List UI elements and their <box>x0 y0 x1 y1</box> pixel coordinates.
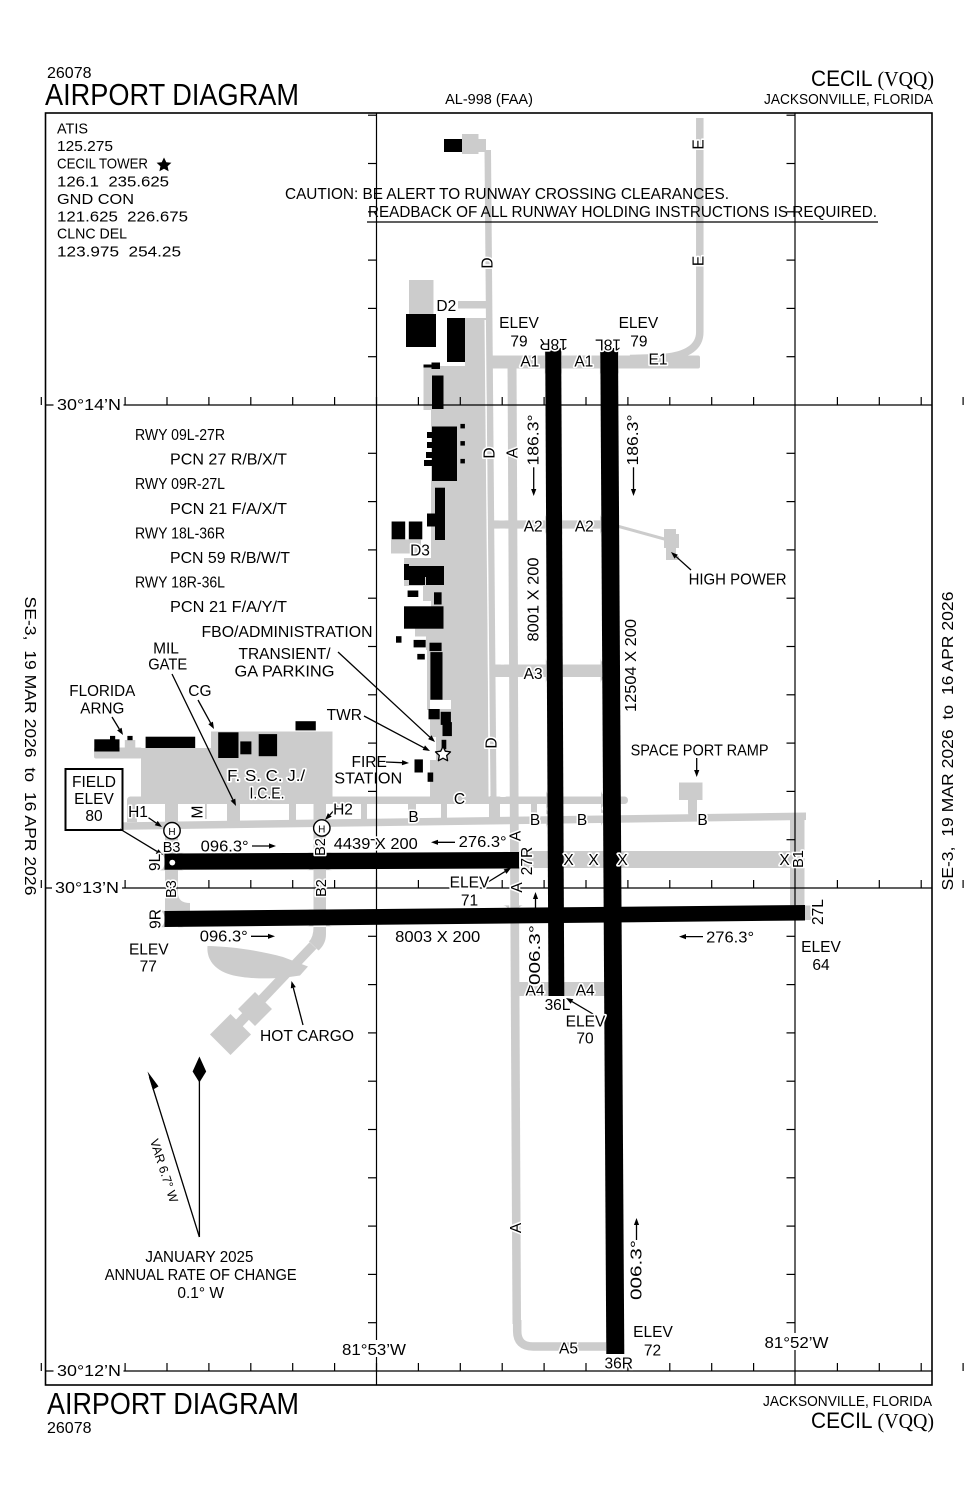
svg-text:CECIL (VQQ): CECIL (VQQ) <box>811 1408 934 1433</box>
svg-text:JANUARY 2025: JANUARY 2025 <box>145 1249 253 1266</box>
svg-text:ELEV: ELEV <box>499 315 539 332</box>
svg-text:186.3°: 186.3° <box>526 415 543 466</box>
svg-text:276.3°: 276.3° <box>706 929 754 946</box>
svg-text:30°13’N: 30°13’N <box>55 880 119 897</box>
svg-text:A2: A2 <box>575 519 594 536</box>
svg-text:ELEV: ELEV <box>566 1014 606 1031</box>
svg-text:CECIL (VQQ): CECIL (VQQ) <box>811 66 934 91</box>
svg-text:26078: 26078 <box>47 1420 92 1437</box>
svg-text:B: B <box>577 812 587 829</box>
svg-text:121.625 226.675: 121.625 226.675 <box>57 208 188 225</box>
svg-text:TRANSIENT/: TRANSIENT/ <box>239 646 332 663</box>
svg-text:D2: D2 <box>436 298 456 315</box>
svg-text:36L: 36L <box>545 997 571 1014</box>
svg-text:H: H <box>318 824 325 835</box>
svg-text:186.3°: 186.3° <box>625 415 642 466</box>
svg-text:006.3°: 006.3° <box>629 1240 646 1300</box>
svg-text:STATION: STATION <box>334 771 402 788</box>
svg-text:79: 79 <box>630 334 647 351</box>
svg-text:X: X <box>588 852 599 869</box>
svg-text:A1: A1 <box>574 354 593 371</box>
svg-text:D: D <box>482 447 499 458</box>
svg-text:70: 70 <box>576 1031 594 1048</box>
svg-text:TWR: TWR <box>327 707 362 724</box>
svg-text:H: H <box>168 827 175 838</box>
svg-text:18R: 18R <box>539 335 567 352</box>
svg-text:18L: 18L <box>595 336 621 353</box>
svg-text:PCN 27 R/B/X/T: PCN 27 R/B/X/T <box>170 452 288 469</box>
svg-text:A4: A4 <box>576 983 595 1000</box>
svg-text:C: C <box>454 791 465 808</box>
svg-text:ANNUAL RATE OF CHANGE: ANNUAL RATE OF CHANGE <box>105 1267 297 1284</box>
svg-text:X: X <box>779 852 790 869</box>
svg-text:276.3°: 276.3° <box>459 834 507 851</box>
svg-text:B: B <box>408 809 418 826</box>
svg-text:RWY 18R-36L: RWY 18R-36L <box>135 575 225 592</box>
svg-text:RWY 09L-27R: RWY 09L-27R <box>135 427 225 444</box>
svg-text:E: E <box>691 139 708 149</box>
svg-text:JACKSONVILLE, FLORIDA: JACKSONVILLE, FLORIDA <box>764 91 933 108</box>
svg-text:SPACE PORT RAMP: SPACE PORT RAMP <box>631 743 769 760</box>
svg-text:36R: 36R <box>604 1356 632 1373</box>
svg-text:9R: 9R <box>147 909 164 929</box>
svg-text:30°14’N: 30°14’N <box>57 397 121 414</box>
svg-text:81°53’W: 81°53’W <box>342 1342 406 1359</box>
svg-text:27L: 27L <box>810 899 827 925</box>
svg-text:B2: B2 <box>314 879 330 897</box>
svg-text:64: 64 <box>812 957 830 974</box>
svg-text:GATE: GATE <box>148 657 187 674</box>
svg-text:A: A <box>505 447 522 458</box>
svg-text:ELEV: ELEV <box>450 875 490 892</box>
svg-text:I.C.E.: I.C.E. <box>250 786 285 803</box>
svg-text:HIGH POWER: HIGH POWER <box>689 572 787 589</box>
svg-text:F. S. C. J./: F. S. C. J./ <box>227 768 306 785</box>
svg-text:AIRPORT DIAGRAM: AIRPORT DIAGRAM <box>47 1386 299 1421</box>
svg-text:FLORIDA: FLORIDA <box>69 683 136 700</box>
svg-text:ELEV: ELEV <box>129 942 169 959</box>
svg-text:A3: A3 <box>524 666 543 683</box>
svg-text:D: D <box>484 737 501 748</box>
svg-text:PCN 59 R/B/W/T: PCN 59 R/B/W/T <box>170 550 291 567</box>
svg-text:D: D <box>480 257 497 268</box>
svg-text:B3: B3 <box>164 880 180 898</box>
svg-text:X: X <box>563 852 574 869</box>
svg-text:CAUTION: BE ALERT TO RUNWAY CR: CAUTION: BE ALERT TO RUNWAY CROSSING CLE… <box>285 186 729 203</box>
svg-text:27R: 27R <box>519 847 536 875</box>
svg-text:4439 X 200: 4439 X 200 <box>334 836 418 853</box>
svg-text:ELEV: ELEV <box>619 315 659 332</box>
svg-text:FBO/ADMINISTRATION: FBO/ADMINISTRATION <box>202 624 373 641</box>
svg-text:RWY 09R-27L: RWY 09R-27L <box>135 476 225 493</box>
svg-text:B2: B2 <box>313 838 329 856</box>
svg-text:A: A <box>509 882 526 893</box>
svg-text:GND CON: GND CON <box>57 191 134 208</box>
svg-text:ELEV: ELEV <box>801 939 841 956</box>
svg-text:126.1 235.625: 126.1 235.625 <box>57 174 169 191</box>
svg-text:H2: H2 <box>333 802 353 819</box>
svg-text:72: 72 <box>644 1343 661 1360</box>
svg-text:D3: D3 <box>410 543 430 560</box>
svg-text:A1: A1 <box>520 354 539 371</box>
svg-text:SE-3, 19 MAR 2026 to 16 APR: SE-3, 19 MAR 2026 to 16 APR 2026 <box>21 597 38 896</box>
svg-text:E1: E1 <box>649 352 668 369</box>
svg-text:8003 X 200: 8003 X 200 <box>395 929 480 946</box>
svg-text:ELEV: ELEV <box>74 791 114 808</box>
svg-text:8001 X 200: 8001 X 200 <box>526 557 543 641</box>
svg-text:80: 80 <box>85 808 103 825</box>
svg-text:096.3°: 096.3° <box>201 838 249 855</box>
svg-text:X: X <box>617 852 628 869</box>
svg-text:71: 71 <box>461 893 478 910</box>
svg-text:0.1° W: 0.1° W <box>177 1285 224 1302</box>
svg-text:HOT CARGO: HOT CARGO <box>260 1028 354 1045</box>
svg-text:RWY 18L-36R: RWY 18L-36R <box>135 525 225 542</box>
svg-text:AIRPORT DIAGRAM: AIRPORT DIAGRAM <box>45 77 299 112</box>
svg-text:A: A <box>508 830 525 841</box>
svg-text:READBACK OF ALL RUNWAY HOLDING: READBACK OF ALL RUNWAY HOLDING INSTRUCTI… <box>368 204 877 221</box>
svg-text:B: B <box>530 812 540 829</box>
svg-text:9L: 9L <box>147 853 164 871</box>
svg-text:PCN 21 F/A/X/T: PCN 21 F/A/X/T <box>170 501 288 518</box>
svg-text:006.3°: 006.3° <box>527 925 544 985</box>
svg-text:MIL: MIL <box>153 641 179 658</box>
svg-text:A2: A2 <box>524 519 543 536</box>
svg-text:FIELD: FIELD <box>72 774 116 791</box>
svg-text:30°12’N: 30°12’N <box>57 1363 121 1380</box>
svg-text:ATIS: ATIS <box>57 120 88 137</box>
svg-text:125.275: 125.275 <box>57 138 113 155</box>
svg-text:GA PARKING: GA PARKING <box>235 664 335 681</box>
svg-text:FIRE: FIRE <box>352 754 387 771</box>
svg-text:77: 77 <box>140 958 157 975</box>
svg-text:SE-3, 19 MAR 2026 to 16 APR: SE-3, 19 MAR 2026 to 16 APR 2026 <box>940 592 957 891</box>
svg-text:096.3°: 096.3° <box>200 929 248 946</box>
svg-text:CG: CG <box>188 683 211 700</box>
svg-text:B: B <box>697 812 707 829</box>
svg-text:ELEV: ELEV <box>633 1324 673 1341</box>
svg-text:B1: B1 <box>791 850 807 868</box>
svg-text:A: A <box>508 1222 525 1233</box>
svg-text:79: 79 <box>510 334 527 351</box>
svg-text:PCN 21 F/A/Y/T: PCN 21 F/A/Y/T <box>170 599 288 616</box>
svg-text:M: M <box>190 806 207 819</box>
svg-text:ARNG: ARNG <box>80 701 124 718</box>
svg-text:A5: A5 <box>559 1341 578 1358</box>
svg-text:12504 X 200: 12504 X 200 <box>623 619 640 712</box>
svg-text:H1: H1 <box>128 804 148 821</box>
svg-text:123.975 254.25: 123.975 254.25 <box>57 243 181 260</box>
svg-text:81°52’W: 81°52’W <box>765 1335 829 1352</box>
svg-text:B3: B3 <box>163 840 181 856</box>
svg-text:E: E <box>691 256 708 266</box>
svg-text:AL-998 (FAA): AL-998 (FAA) <box>445 92 533 108</box>
svg-text:CECIL TOWER: CECIL TOWER <box>57 156 148 173</box>
svg-text:CLNC DEL: CLNC DEL <box>57 226 127 243</box>
